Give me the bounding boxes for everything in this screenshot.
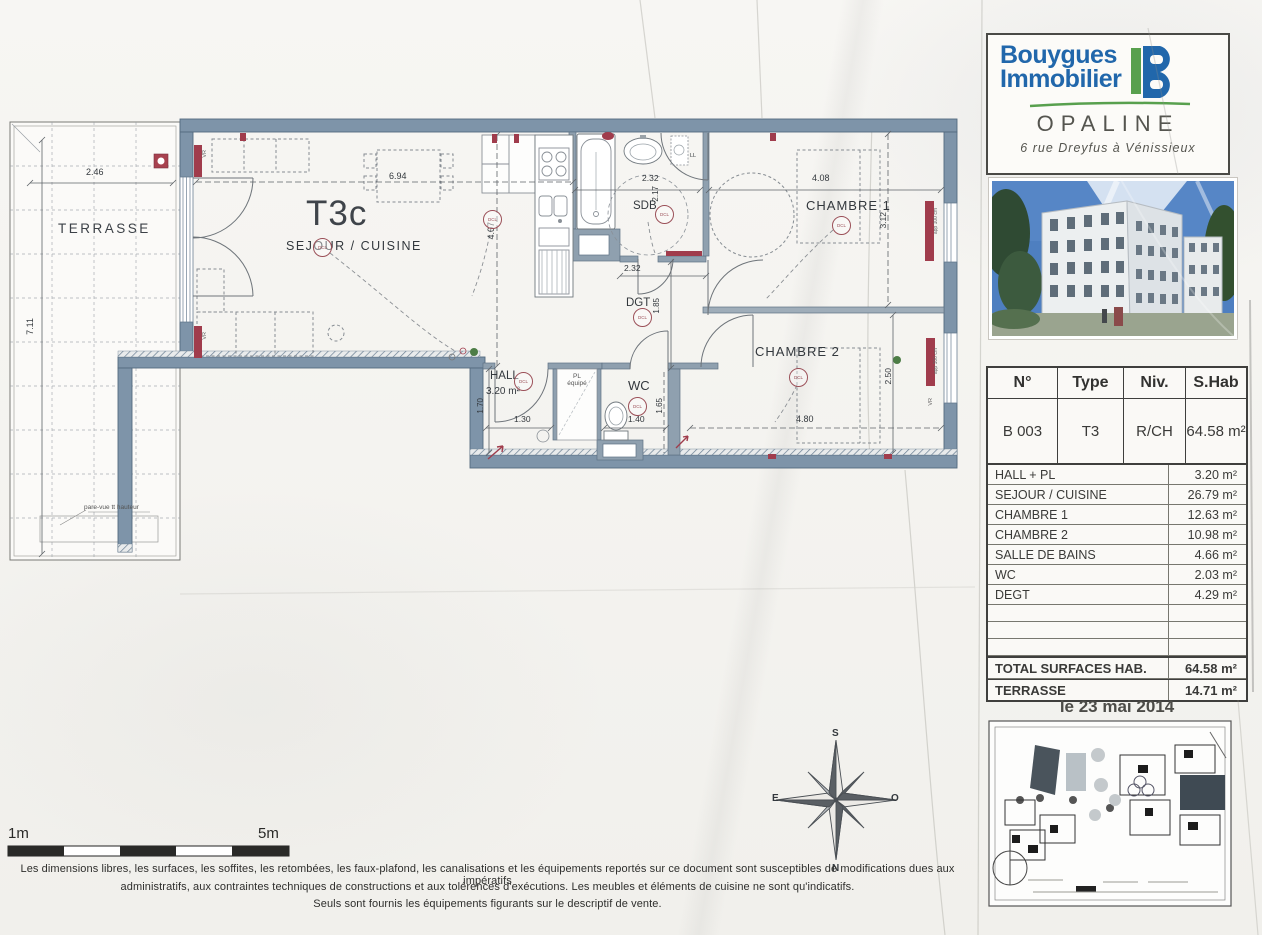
window-sill-note-1: app 100 cm: [934, 208, 939, 234]
disclaimer-line-3: Seuls sont fournis les équipements figur…: [5, 898, 970, 910]
dim-ch2-width: 4.80: [796, 415, 814, 424]
total-value: 64.58 m²: [1168, 658, 1246, 678]
dcl-text: DCL: [638, 315, 647, 320]
dim-ch1-height: 3.12: [879, 212, 888, 229]
area-label: HALL + PL: [988, 468, 1055, 482]
area-label: DEGT: [988, 588, 1030, 602]
disclaimer-line-2: administratifs, aux contraintes techniqu…: [5, 881, 970, 893]
sejour-label: SEJOUR / CUISINE: [286, 240, 422, 253]
dim-wc-width: 1.40: [628, 415, 645, 424]
area-value: 3.20 m²: [1168, 465, 1246, 484]
washer-label: LL: [690, 154, 696, 160]
dim-ch2-height: 2.50: [884, 368, 893, 385]
summary-header-level: Niv.: [1124, 368, 1186, 399]
dcl-text: DCL: [794, 375, 803, 380]
area-row: SEJOUR / CUISINE26.79 m²: [988, 485, 1246, 505]
dim-hall-width: 1.30: [514, 415, 531, 424]
dcl-text: DCL: [488, 217, 497, 222]
area-value: 26.79 m²: [1168, 485, 1246, 504]
plan-date: le 23 mai 2014: [986, 697, 1248, 717]
brand-name-line2: Immobilier: [1000, 68, 1121, 92]
terrasse-total-label: TERRASSE: [988, 683, 1066, 698]
dim-terrasse-height: 7.11: [26, 318, 35, 335]
dim-dgt-height: 1.85: [653, 298, 661, 314]
shutter-note-1: VR: [203, 150, 209, 158]
sdb-label: SDB: [633, 201, 657, 213]
program-name: OPALINE: [988, 111, 1228, 137]
area-empty-row: [988, 605, 1246, 622]
dcl-text: DCL: [519, 379, 528, 384]
chambre1-label: CHAMBRE 1: [806, 199, 891, 212]
area-row: SALLE DE BAINS4.66 m²: [988, 545, 1246, 565]
green-swoosh-icon: [990, 100, 1226, 108]
dcl-symbol-chambre2: DCL: [789, 368, 808, 387]
area-label: CHAMBRE 1: [988, 508, 1068, 522]
dcl-symbol-hall: DCL: [514, 372, 533, 391]
program-address: 6 rue Dreyfus à Vénissieux: [988, 141, 1228, 155]
wall-hatch-strips: [118, 351, 957, 552]
area-row: HALL + PL3.20 m²: [988, 465, 1246, 485]
dim-terrasse-width: 2.46: [86, 168, 104, 177]
area-row: WC2.03 m²: [988, 565, 1246, 585]
area-value: 4.66 m²: [1168, 545, 1246, 564]
summary-value-level: R/CH: [1124, 399, 1186, 463]
area-label: CHAMBRE 2: [988, 528, 1068, 542]
area-label: WC: [988, 568, 1016, 582]
area-row: DEGT4.29 m²: [988, 585, 1246, 605]
summary-value-area: 64.58 m²: [1186, 399, 1246, 463]
building-photo-image: [992, 181, 1234, 336]
dcl-text: DCL: [633, 404, 642, 409]
room-areas-table: HALL + PL3.20 m² SEJOUR / CUISINE26.79 m…: [986, 465, 1248, 702]
shutter-note-2: VR: [203, 332, 209, 340]
area-row: CHAMBRE 112.63 m²: [988, 505, 1246, 525]
brand-name: Bouygues Immobilier: [1000, 44, 1121, 92]
site-plan-thumbnail: [988, 720, 1232, 907]
dcl-symbol-sejour: DCL: [313, 238, 332, 257]
dim-ch1-width: 4.08: [812, 174, 830, 183]
dcl-symbol-chambre1: DCL: [832, 216, 851, 235]
dcl-symbol-sdb: DCL: [655, 205, 674, 224]
compass-east: E: [772, 794, 779, 804]
area-label: SALLE DE BAINS: [988, 548, 1096, 562]
dim-hall-height: 1.70: [477, 398, 485, 414]
closet-label: PL équipé: [560, 374, 594, 387]
area-value: 4.29 m²: [1168, 585, 1246, 604]
developer-logo-box: Bouygues Immobilier OPALINE 6 rue Dreyfu…: [986, 33, 1230, 175]
dcl-text: DCL: [660, 212, 669, 217]
wc-label: WC: [628, 379, 650, 392]
dim-sdb-width: 2.32: [642, 174, 659, 183]
area-empty-row: [988, 639, 1246, 656]
area-label: SEJOUR / CUISINE: [988, 488, 1107, 502]
area-value: 10.98 m²: [1168, 525, 1246, 544]
total-areas-row: TOTAL SURFACES HAB.64.58 m²: [988, 656, 1246, 679]
dim-sdb-width-2: 2.32: [624, 264, 641, 273]
area-value: 2.03 m²: [1168, 565, 1246, 584]
building-photo: [988, 177, 1238, 340]
summary-header-type: Type: [1058, 368, 1124, 399]
dcl-symbol-dgt: DCL: [633, 308, 652, 327]
area-value: 12.63 m²: [1168, 505, 1246, 524]
closet-label-line2: équipé: [567, 380, 587, 387]
dim-sejour-width: 6.94: [389, 172, 407, 181]
window-sill-note-2: app 100 cm: [934, 348, 939, 374]
brand-row: Bouygues Immobilier: [988, 35, 1228, 100]
dcl-symbol-kitchen: DCL: [483, 210, 502, 229]
pare-vue-note: pare-vue tt hauteur: [84, 505, 139, 512]
terrasse-label: TERRASSE: [58, 222, 151, 236]
dim-sdb-height: 2.17: [652, 186, 660, 202]
dcl-symbol-wc: DCL: [628, 397, 647, 416]
area-empty-row: [988, 622, 1246, 639]
bouygues-b-logo-icon: [1125, 44, 1187, 100]
terrasse-grid: [10, 122, 180, 560]
unit-code: T3c: [306, 196, 367, 231]
summary-value-number: B 003: [988, 399, 1058, 463]
scale-label-1m: 1m: [8, 826, 29, 841]
site-plan-image: [988, 720, 1232, 907]
scanned-floorplan-sheet: TERRASSE 2.46 7.11 pare-vue tt hauteur T…: [0, 0, 1262, 935]
unit-summary-table: N° Type Niv. S.Hab B 003 T3 R/CH 64.58 m…: [986, 366, 1248, 465]
dcl-text: DCL: [837, 223, 846, 228]
compass-rose-icon: [776, 740, 896, 860]
summary-value-type: T3: [1058, 399, 1124, 463]
area-row: CHAMBRE 210.98 m²: [988, 525, 1246, 545]
scale-bar: [8, 846, 289, 856]
compass-south: S: [832, 729, 839, 739]
summary-header-area: S.Hab: [1186, 368, 1246, 399]
dcl-text: DCL: [318, 245, 327, 250]
scale-label-5m: 5m: [258, 826, 279, 841]
hall-area-label: 3.20 m²: [486, 387, 520, 397]
chambre2-label: CHAMBRE 2: [755, 345, 840, 358]
dim-wc-height: 1.65: [656, 398, 664, 414]
compass-west: O: [891, 794, 899, 804]
shutter-note-3: VR: [929, 398, 935, 406]
summary-header-number: N°: [988, 368, 1058, 399]
total-label: TOTAL SURFACES HAB.: [988, 661, 1147, 676]
